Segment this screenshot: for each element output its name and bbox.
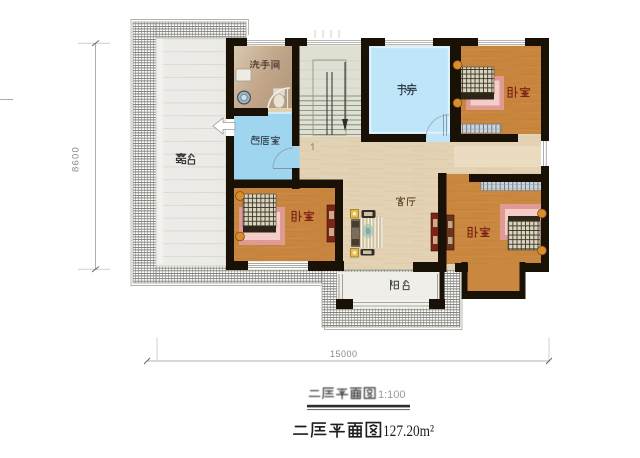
svg-text:8600: 8600: [71, 146, 82, 172]
svg-text:15000: 15000: [330, 349, 358, 359]
svg-text:1:100: 1:100: [378, 389, 406, 401]
svg-text:127.20m²: 127.20m²: [383, 423, 434, 440]
